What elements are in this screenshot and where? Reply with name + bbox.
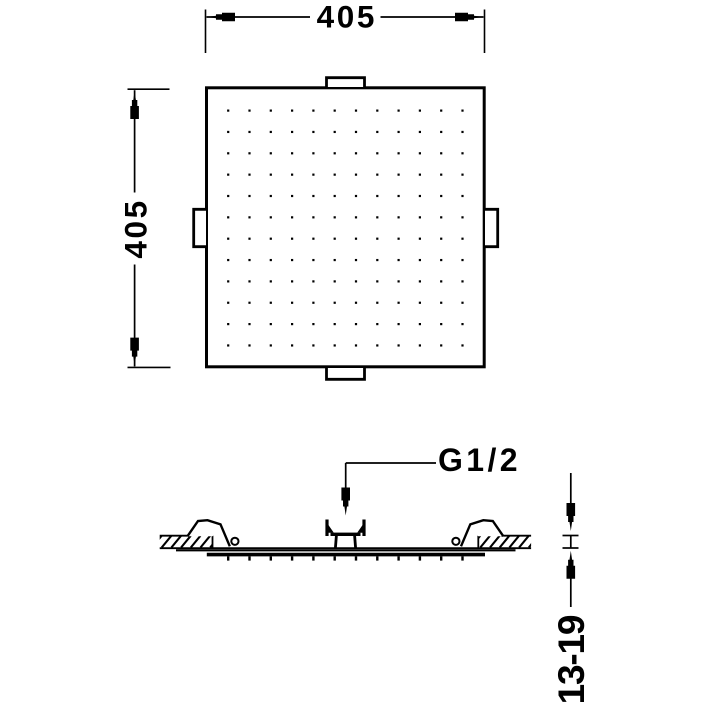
svg-text:G1/2: G1/2: [438, 442, 521, 478]
svg-text:405: 405: [317, 0, 377, 35]
svg-text:13-19: 13-19: [551, 615, 592, 704]
svg-text:405: 405: [118, 198, 154, 258]
